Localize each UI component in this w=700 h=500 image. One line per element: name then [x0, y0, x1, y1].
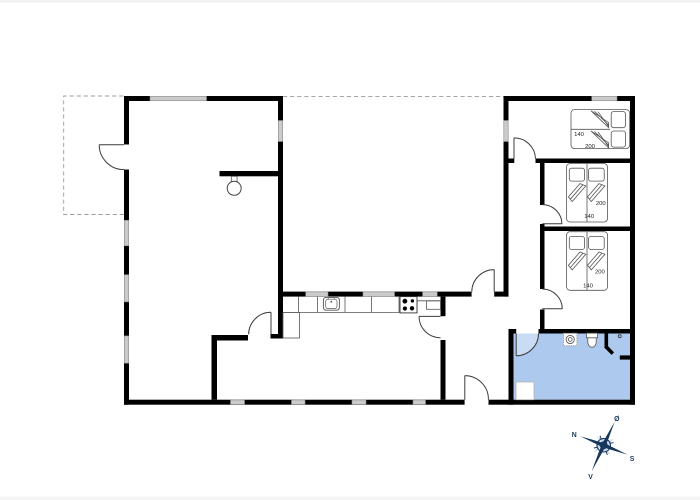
svg-text:200: 200 — [596, 201, 607, 207]
svg-text:140: 140 — [583, 284, 594, 290]
svg-text:200: 200 — [585, 144, 596, 150]
svg-text:Ø: Ø — [614, 416, 620, 423]
svg-text:200: 200 — [595, 269, 606, 275]
svg-text:140: 140 — [574, 132, 585, 138]
svg-text:S: S — [630, 456, 635, 463]
svg-text:140: 140 — [584, 214, 595, 220]
svg-text:N: N — [572, 432, 577, 439]
svg-text:V: V — [588, 474, 593, 481]
